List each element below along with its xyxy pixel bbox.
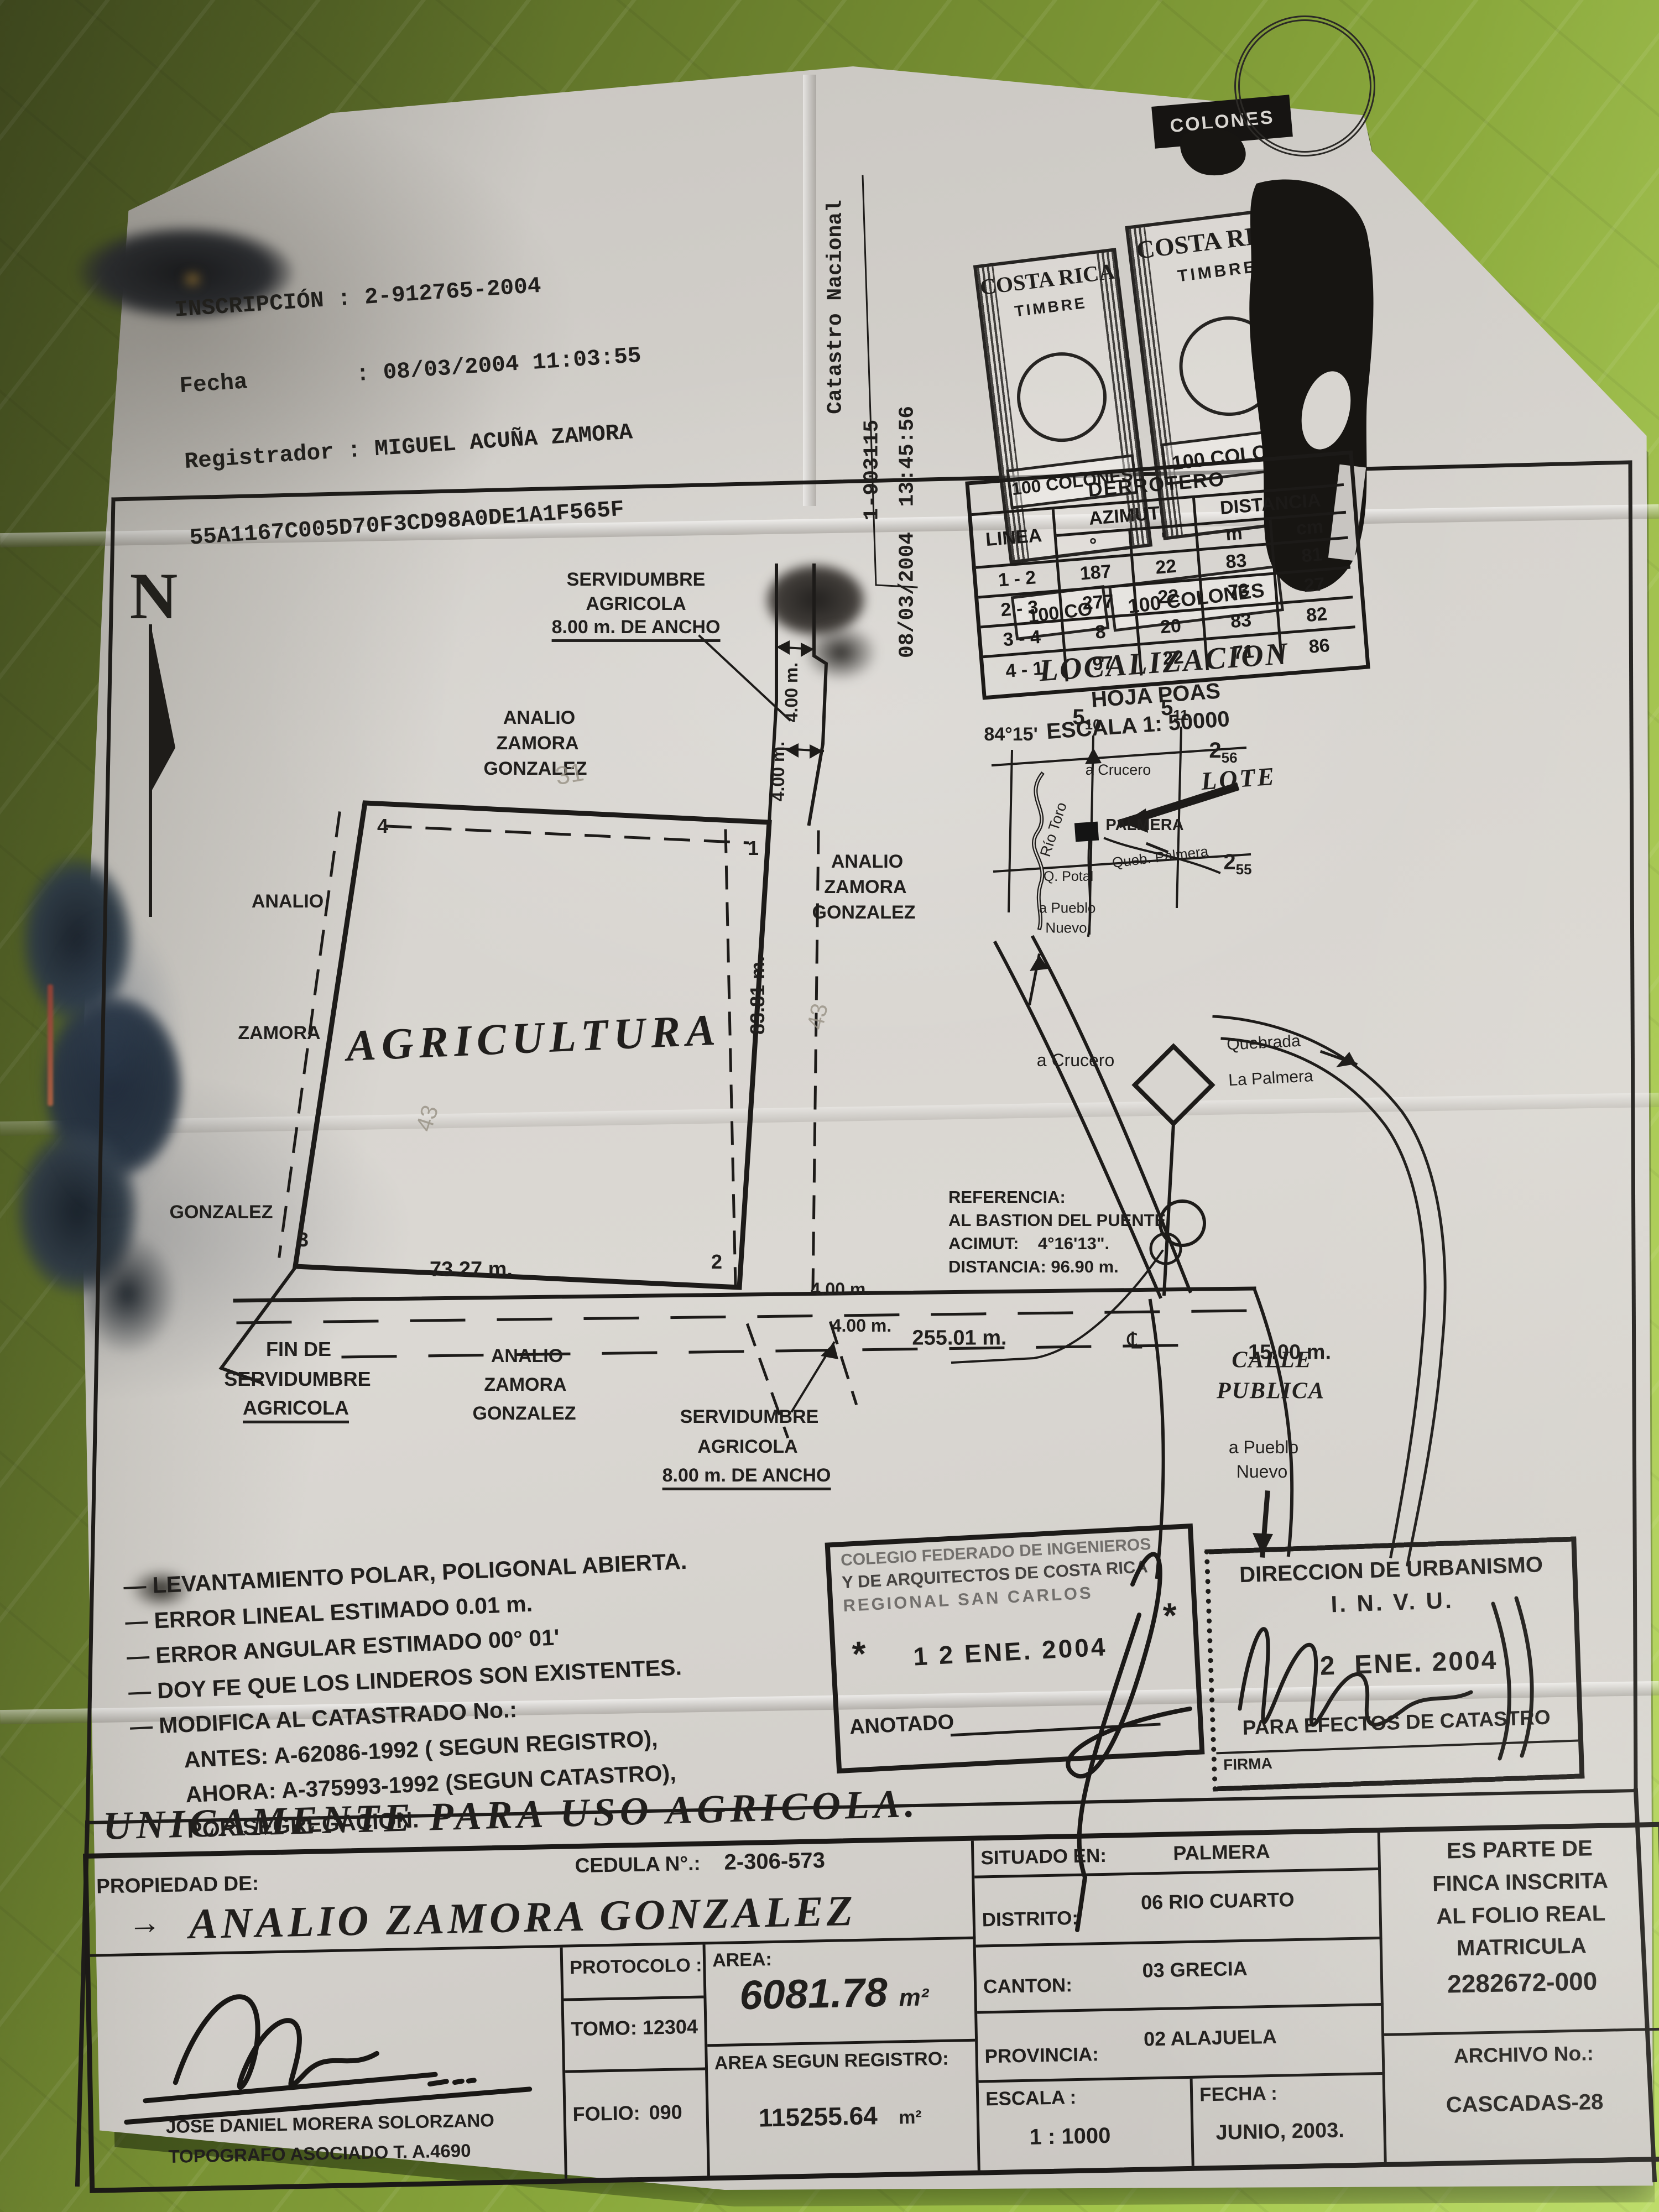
tomo-value: TOMO: 12304 [571,2016,698,2041]
parte-3: AL FOLIO REAL [1381,1900,1659,1930]
folio-real-cell: ES PARTE DE FINCA INSCRITA AL FOLIO REAL… [1380,1827,1659,2036]
protocolo-cell: PROTOCOLO : TOMO: 12304 FOLIO: 090 [563,1944,710,2178]
area-unit: m² [899,1984,929,2011]
area-number: 6081.78 [739,1969,888,2018]
propiedad-label: PROPIEDAD DE: [96,1872,259,1898]
area-reg-label: AREA SEGUN REGISTRO: [714,2048,948,2074]
fecha-label: FECHA : [1199,2083,1277,2106]
escala-cell: ESCALA : 1 : 1000 [979,2079,1194,2171]
parte-4: MATRICULA [1383,1932,1659,1963]
canton-value: 03 GRECIA [1142,1958,1248,1982]
cedula-label: CEDULA N°.: [575,1852,701,1877]
canton-label: CANTON: [983,1974,1072,1997]
folio-value: 090 [649,2101,682,2124]
owner-name: ANALIO ZAMORA GONZALEZ [189,1886,857,1948]
parte-2: FINCA INSCRITA [1381,1867,1659,1898]
distrito-label: DISTRITO: [982,1907,1078,1931]
matricula-value: 2282672-000 [1383,1966,1659,2000]
propiedad-cell: PROPIEDAD DE: CEDULA N°.: 2-306-573 → AN… [88,1841,975,1957]
protocolo-label: PROTOCOLO : [570,1955,702,1979]
provincia-label: PROVINCIA: [984,2043,1099,2067]
area-reg-number: 115255.64 [758,2101,878,2132]
provincia-value: 02 ALAJUELA [1144,2026,1277,2051]
distrito-cell: DISTRITO: 06 RIO CUARTO [974,1870,1382,1948]
distrito-value: 06 RIO CUARTO [1141,1888,1295,1914]
parte-1: ES PARTE DE [1380,1835,1659,1865]
cedula-value: 2-306-573 [724,1848,825,1875]
fecha-value: JUNIO, 2003. [1215,2119,1344,2145]
fecha-cell: FECHA : JUNIO, 2003. [1193,2075,1387,2166]
area-reg-value: 115255.64 m² [758,2101,922,2132]
area-cell: AREA: 6081.78 m² AREA SEGUN REGISTRO: 11… [706,1939,980,2176]
archivo-label: ARCHIVO No.: [1384,2041,1659,2069]
owner-arrow: → [128,1903,161,1941]
title-block-table: PROPIEDAD DE: CEDULA N°.: 2-306-573 → AN… [83,1822,1659,2193]
provincia-cell: PROVINCIA: 02 ALAJUELA [977,2006,1385,2083]
divider [707,2039,975,2047]
situado-label: SITUADO EN: [980,1845,1107,1869]
area-value: 6081.78 m² [739,1969,929,2018]
situado-value: PALMERA [1173,1840,1270,1865]
surveyor-cell: JOSE DANIEL MORERA SOLORZANO TOPOGRAFO A… [90,1948,567,2188]
escala-value: 1 : 1000 [1029,2124,1111,2150]
escala-label: ESCALA : [985,2086,1077,2110]
area-label: AREA: [712,1949,772,1971]
folio-label: FOLIO: [572,2102,640,2126]
canton-cell: CANTON: 03 GRECIA [976,1939,1384,2014]
divider [564,1996,703,2001]
area-reg-unit: m² [899,2107,922,2128]
photo-of-cadastral-plan: { "registry": { "line1": "INSCRIPCIÓN : … [0,0,1659,2212]
archivo-value: CASCADAS-28 [1385,2089,1659,2119]
archivo-cell: ARCHIVO No.: CASCADAS-28 [1384,2031,1659,2162]
divider [565,2067,705,2073]
